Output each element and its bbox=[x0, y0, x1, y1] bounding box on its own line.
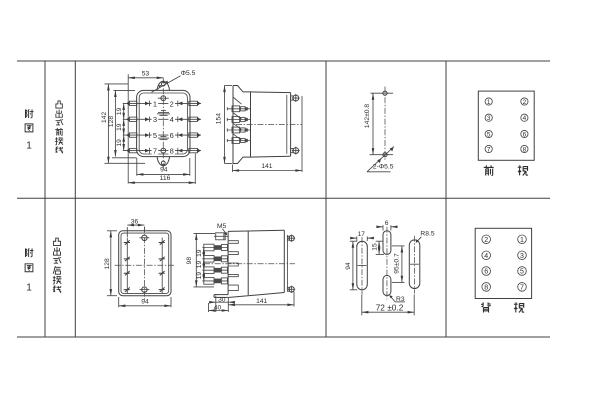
svg-text:5: 5 bbox=[487, 131, 491, 138]
svg-text:1: 1 bbox=[153, 99, 157, 108]
svg-text:19: 19 bbox=[196, 249, 203, 257]
svg-text:95±0.7: 95±0.7 bbox=[393, 253, 400, 274]
svg-text:19: 19 bbox=[116, 139, 123, 147]
svg-text:19: 19 bbox=[196, 261, 203, 269]
svg-text:6: 6 bbox=[170, 131, 174, 140]
svg-text:1: 1 bbox=[26, 141, 32, 152]
svg-text:5: 5 bbox=[520, 269, 524, 276]
svg-text:40: 40 bbox=[214, 305, 222, 312]
svg-text:2: 2 bbox=[170, 99, 174, 108]
svg-text:142: 142 bbox=[101, 112, 108, 123]
svg-text:8: 8 bbox=[484, 285, 488, 292]
svg-text:94: 94 bbox=[345, 262, 352, 270]
svg-text:17: 17 bbox=[358, 231, 366, 238]
svg-text:116: 116 bbox=[160, 175, 171, 182]
svg-text:6: 6 bbox=[484, 269, 488, 276]
svg-text:5: 5 bbox=[153, 131, 157, 140]
svg-text:7: 7 bbox=[487, 146, 491, 153]
svg-text:94: 94 bbox=[141, 298, 149, 305]
svg-text:4: 4 bbox=[170, 115, 174, 124]
svg-text:8: 8 bbox=[170, 147, 174, 156]
svg-text:1: 1 bbox=[487, 99, 491, 106]
svg-text:1: 1 bbox=[26, 282, 32, 293]
svg-text:128: 128 bbox=[108, 116, 115, 127]
svg-text:R8.5: R8.5 bbox=[420, 231, 434, 238]
svg-text:1: 1 bbox=[520, 237, 524, 244]
svg-text:Φ5.5: Φ5.5 bbox=[181, 70, 196, 77]
svg-text:19: 19 bbox=[116, 107, 123, 115]
svg-text:2-Φ5.5: 2-Φ5.5 bbox=[373, 164, 394, 171]
svg-text:142±0.8: 142±0.8 bbox=[364, 104, 371, 128]
svg-text:3: 3 bbox=[487, 115, 491, 122]
svg-text:15: 15 bbox=[372, 243, 379, 251]
svg-text:4: 4 bbox=[523, 115, 527, 122]
svg-text:36: 36 bbox=[131, 218, 139, 225]
svg-text:8: 8 bbox=[523, 146, 527, 153]
svg-text:141: 141 bbox=[256, 298, 267, 305]
svg-text:72 ±0.2: 72 ±0.2 bbox=[376, 303, 404, 313]
svg-text:53: 53 bbox=[142, 71, 150, 78]
svg-text:141: 141 bbox=[261, 163, 272, 170]
svg-text:2: 2 bbox=[484, 237, 488, 244]
svg-text:19: 19 bbox=[116, 123, 123, 131]
svg-text:6: 6 bbox=[385, 220, 389, 227]
svg-text:3: 3 bbox=[520, 253, 524, 260]
svg-text:154: 154 bbox=[216, 113, 223, 124]
svg-text:30: 30 bbox=[218, 297, 226, 304]
svg-text:3: 3 bbox=[153, 115, 157, 124]
svg-text:19: 19 bbox=[196, 272, 203, 280]
svg-text:7: 7 bbox=[153, 147, 157, 156]
svg-text:6: 6 bbox=[523, 131, 527, 138]
svg-text:7: 7 bbox=[520, 285, 524, 292]
svg-text:98: 98 bbox=[186, 257, 193, 265]
svg-text:4: 4 bbox=[484, 253, 488, 260]
svg-text:128: 128 bbox=[104, 258, 111, 269]
svg-text:94: 94 bbox=[160, 167, 168, 174]
svg-text:M5: M5 bbox=[217, 223, 227, 230]
svg-text:2: 2 bbox=[523, 99, 527, 106]
